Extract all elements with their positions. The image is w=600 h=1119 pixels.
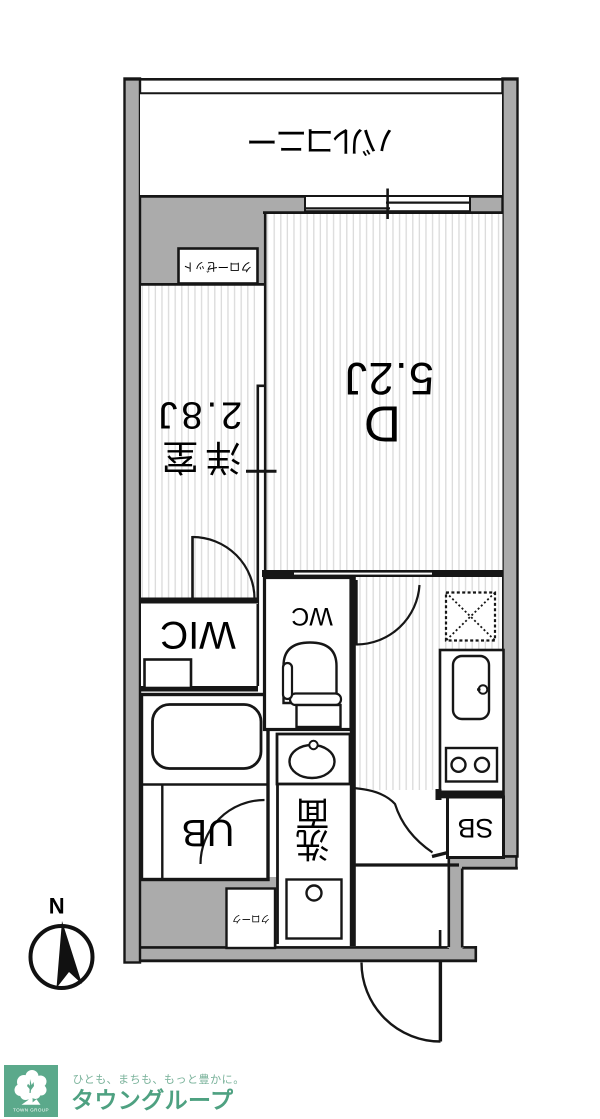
svg-text:N: N [49,894,65,919]
svg-text:SB: SB [457,813,493,843]
svg-text:クローゼット: クローゼット [183,260,252,273]
svg-text:WIC: WIC [160,613,236,656]
svg-text:WC: WC [291,602,333,630]
svg-text:D: D [364,396,401,453]
svg-text:UB: UB [182,811,235,853]
svg-text:タウングループ: タウングループ [71,1087,234,1113]
svg-text:2.8J: 2.8J [154,394,242,436]
svg-text:TOWN GROUP: TOWN GROUP [13,1108,49,1113]
svg-text:洋室: 洋室 [155,437,241,478]
svg-text:ひとも、まちも、もっと豊かに。: ひとも、まちも、もっと豊かに。 [73,1073,245,1086]
svg-text:洗: 洗 [296,825,330,863]
svg-text:バルコニー: バルコニー [249,123,393,159]
svg-text:クローク: クローク [232,913,270,924]
